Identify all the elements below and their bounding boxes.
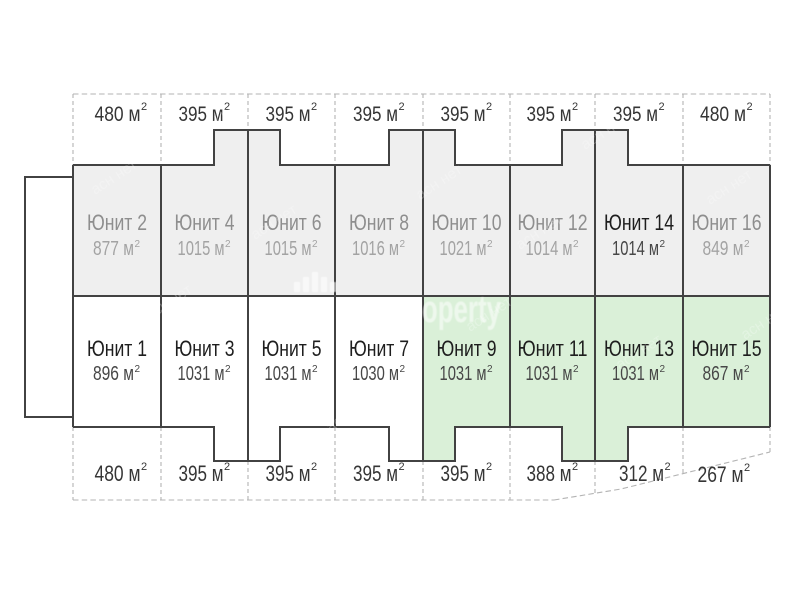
svg-text:395 м: 395 м	[353, 461, 398, 486]
svg-text:Юнит 10: Юнит 10	[432, 210, 502, 235]
svg-text:2: 2	[487, 364, 493, 375]
svg-text:2: 2	[744, 462, 750, 474]
svg-text:2: 2	[665, 461, 671, 473]
svg-text:1030 м: 1030 м	[352, 363, 399, 385]
svg-text:2: 2	[744, 239, 750, 250]
svg-text:395 м: 395 м	[441, 103, 486, 126]
svg-text:Юнит 3: Юнит 3	[175, 336, 235, 361]
svg-text:849 м: 849 м	[703, 238, 744, 260]
svg-text:Юнит 1: Юнит 1	[87, 336, 147, 361]
svg-text:877 м: 877 м	[93, 238, 134, 260]
svg-text:Юнит 4: Юнит 4	[175, 210, 235, 235]
svg-text:2: 2	[400, 364, 406, 375]
svg-text:Юнит 2: Юнит 2	[87, 210, 147, 235]
svg-text:312 м: 312 м	[619, 461, 664, 486]
svg-text:867 м: 867 м	[703, 363, 744, 385]
svg-text:2: 2	[486, 101, 492, 113]
svg-text:Юнит 11: Юнит 11	[518, 336, 588, 361]
svg-text:395 м: 395 м	[266, 461, 311, 486]
svg-text:2: 2	[744, 364, 750, 375]
svg-text:Юнит 8: Юнит 8	[349, 210, 409, 235]
svg-text:2: 2	[224, 461, 230, 473]
svg-text:2: 2	[312, 239, 318, 250]
svg-text:2: 2	[312, 364, 318, 375]
svg-text:2: 2	[660, 239, 666, 250]
svg-text:Юнит 7: Юнит 7	[349, 336, 409, 361]
svg-text:2: 2	[400, 239, 406, 250]
svg-text:Юнит 16: Юнит 16	[692, 210, 762, 235]
svg-text:395 м: 395 м	[179, 461, 224, 486]
svg-text:2: 2	[225, 239, 231, 250]
svg-text:1031 м: 1031 м	[265, 363, 312, 385]
svg-text:2: 2	[135, 364, 141, 375]
svg-text:2: 2	[399, 461, 405, 473]
svg-text:480 м: 480 м	[700, 103, 746, 126]
svg-text:1014 м: 1014 м	[612, 238, 659, 260]
svg-text:395 м: 395 м	[266, 103, 311, 126]
svg-text:2: 2	[135, 239, 141, 250]
svg-text:1021 м: 1021 м	[440, 238, 487, 260]
svg-text:2: 2	[399, 101, 405, 113]
svg-text:480 м: 480 м	[95, 103, 141, 126]
svg-text:2: 2	[487, 239, 493, 250]
svg-text:1031 м: 1031 м	[526, 363, 573, 385]
svg-text:395 м: 395 м	[441, 461, 486, 486]
svg-text:1015 м: 1015 м	[265, 238, 312, 260]
svg-text:1031 м: 1031 м	[440, 363, 487, 385]
svg-text:395 м: 395 м	[527, 103, 572, 126]
svg-text:2: 2	[572, 101, 578, 113]
svg-text:2: 2	[141, 101, 147, 113]
svg-text:2: 2	[141, 461, 147, 473]
svg-text:480 м: 480 м	[95, 461, 141, 486]
svg-text:2: 2	[225, 364, 231, 375]
svg-text:2: 2	[659, 101, 665, 113]
svg-text:267 м: 267 м	[698, 462, 744, 487]
svg-text:2: 2	[486, 461, 492, 473]
svg-text:Юнит 14: Юнит 14	[604, 210, 674, 235]
svg-text:896 м: 896 м	[93, 363, 134, 385]
svg-text:1031 м: 1031 м	[178, 363, 225, 385]
svg-text:Юнит 5: Юнит 5	[262, 336, 322, 361]
svg-text:2: 2	[311, 101, 317, 113]
svg-text:2: 2	[660, 364, 666, 375]
svg-text:2: 2	[747, 101, 753, 113]
svg-text:2: 2	[573, 239, 579, 250]
svg-text:2: 2	[573, 364, 579, 375]
svg-text:2: 2	[572, 461, 578, 473]
svg-text:2: 2	[311, 461, 317, 473]
svg-text:1016 м: 1016 м	[352, 238, 399, 260]
svg-text:395 м: 395 м	[353, 103, 398, 126]
svg-text:1015 м: 1015 м	[178, 238, 225, 260]
svg-text:388 м: 388 м	[527, 461, 572, 486]
svg-text:Юнит 9: Юнит 9	[437, 336, 497, 361]
